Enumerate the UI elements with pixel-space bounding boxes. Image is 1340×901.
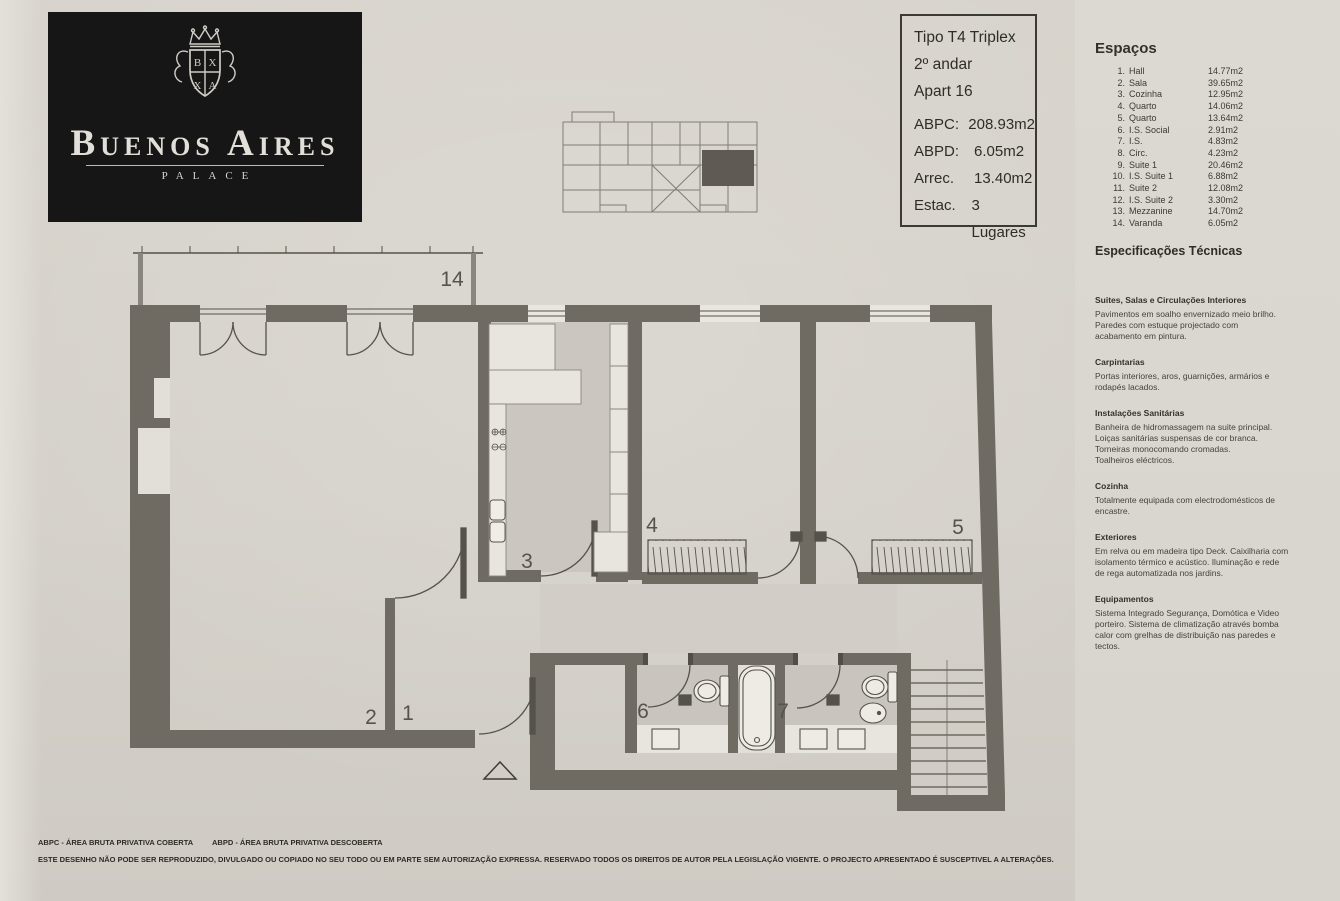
metric-value: 13.40m2 <box>974 165 1032 192</box>
svg-text:X: X <box>194 80 202 92</box>
apartment-number: Apart 16 <box>914 78 1035 105</box>
space-name: I.S. Suite 1 <box>1129 171 1208 183</box>
space-row: 1. Hall 14.77m2 <box>1095 66 1270 78</box>
space-name: Suite 1 <box>1129 160 1208 172</box>
spec-heading: Equipamentos <box>1095 594 1307 604</box>
space-row: 7. I.S. 4.83m2 <box>1095 136 1270 148</box>
metric-value: 6.05m2 <box>974 138 1024 165</box>
metric-label: Estac. <box>914 192 964 246</box>
spec-heading: Exteriores <box>1095 532 1307 542</box>
metric-row: ABPC: 208.93m2 <box>914 111 1035 138</box>
space-number: 4. <box>1095 101 1125 113</box>
space-area: 39.65m2 <box>1208 78 1270 90</box>
space-name: Cozinha <box>1129 89 1208 101</box>
apartment-floor: 2º andar <box>914 51 1035 78</box>
metric-row: Estac. 3 Lugares <box>914 192 1035 246</box>
logo-title: Buenos Aires <box>71 126 340 162</box>
specs-sections: Suites, Salas e Circulações Interiores P… <box>1095 280 1307 652</box>
space-number: 11. <box>1095 183 1125 195</box>
space-name: I.S. Suite 2 <box>1129 195 1208 207</box>
heraldic-crest-icon: BX XA <box>160 22 250 124</box>
space-name: Quarto <box>1129 101 1208 113</box>
space-area: 4.23m2 <box>1208 148 1270 160</box>
space-row: 5. Quarto 13.64m2 <box>1095 113 1270 125</box>
space-name: Quarto <box>1129 113 1208 125</box>
space-number: 14. <box>1095 218 1125 230</box>
spec-heading: Suites, Salas e Circulações Interiores <box>1095 295 1307 305</box>
spec-section: Carpintarias Portas interiores, aros, gu… <box>1095 357 1307 393</box>
bidet-icon <box>860 703 886 723</box>
space-number: 8. <box>1095 148 1125 160</box>
logo-card: BX XA Buenos Aires PALACE <box>48 12 362 222</box>
space-number: 12. <box>1095 195 1125 207</box>
entrance-triangle-icon <box>484 762 516 779</box>
space-number: 3. <box>1095 89 1125 101</box>
space-row: 12. I.S. Suite 2 3.30m2 <box>1095 195 1270 207</box>
metric-value: 3 Lugares <box>972 192 1036 246</box>
metric-row: ABPD: 6.05m2 <box>914 138 1035 165</box>
space-row: 11. Suite 2 12.08m2 <box>1095 183 1270 195</box>
space-row: 14. Varanda 6.05m2 <box>1095 218 1270 230</box>
stairs <box>911 660 987 795</box>
sink-icon <box>800 729 827 749</box>
svg-text:X: X <box>209 57 217 69</box>
space-name: Suite 2 <box>1129 183 1208 195</box>
logo-subtitle: PALACE <box>153 170 258 182</box>
key-plan-unit-highlight <box>702 150 754 186</box>
key-plan-thumbnail <box>555 105 770 230</box>
copyright-disclaimer: ESTE DESENHO NÃO PODE SER REPRODUZIDO, D… <box>38 855 1054 864</box>
room-label-hall: 1 <box>402 702 414 725</box>
sink-icon <box>838 729 865 749</box>
apartment-info-box: Tipo T4 Triplex 2º andar Apart 16 ABPC: … <box>900 14 1037 227</box>
logo-rule <box>86 165 324 166</box>
space-name: I.S. Social <box>1129 125 1208 137</box>
floor-plan-drawing: 14 2 1 3 4 5 6 7 <box>60 240 1015 815</box>
spec-body: Banheira de hidromassagem na suite princ… <box>1095 422 1307 466</box>
spec-section: Instalações Sanitárias Banheira de hidro… <box>1095 408 1307 466</box>
space-area: 14.77m2 <box>1208 66 1270 78</box>
room-label-quarto4: 4 <box>646 514 658 537</box>
space-number: 7. <box>1095 136 1125 148</box>
space-row: 6. I.S. Social 2.91m2 <box>1095 125 1270 137</box>
space-area: 13.64m2 <box>1208 113 1270 125</box>
apartment-metrics: ABPC: 208.93m2 ABPD: 6.05m2 Arrec. 13.40… <box>914 111 1035 246</box>
room-label-cozinha: 3 <box>521 550 533 573</box>
metric-label: Arrec. <box>914 165 966 192</box>
space-row: 3. Cozinha 12.95m2 <box>1095 89 1270 101</box>
spec-section: Suites, Salas e Circulações Interiores P… <box>1095 295 1307 342</box>
space-area: 14.06m2 <box>1208 101 1270 113</box>
spec-body: Portas interiores, aros, guarnições, arm… <box>1095 371 1307 393</box>
spec-heading: Carpintarias <box>1095 357 1307 367</box>
legend-abpd: ABPD - ÁREA BRUTA PRIVATIVA DESCOBERTA <box>212 838 383 847</box>
room-label-quarto5: 5 <box>952 516 964 539</box>
space-name: Circ. <box>1129 148 1208 160</box>
space-number: 9. <box>1095 160 1125 172</box>
spec-body: Em relva ou em madeira tipo Deck. Caixil… <box>1095 546 1307 579</box>
space-number: 1. <box>1095 66 1125 78</box>
spec-heading: Instalações Sanitárias <box>1095 408 1307 418</box>
metric-label: ABPC: <box>914 111 960 138</box>
space-area: 4.83m2 <box>1208 136 1270 148</box>
balcony <box>133 246 483 305</box>
space-name: Varanda <box>1129 218 1208 230</box>
space-row: 13. Mezzanine 14.70m2 <box>1095 206 1270 218</box>
space-number: 2. <box>1095 78 1125 90</box>
space-row: 8. Circ. 4.23m2 <box>1095 148 1270 160</box>
spec-body: Pavimentos em soalho envernizado meio br… <box>1095 309 1307 342</box>
space-number: 6. <box>1095 125 1125 137</box>
metric-label: ABPD: <box>914 138 966 165</box>
space-row: 4. Quarto 14.06m2 <box>1095 101 1270 113</box>
space-name: I.S. <box>1129 136 1208 148</box>
space-area: 12.08m2 <box>1208 183 1270 195</box>
space-number: 5. <box>1095 113 1125 125</box>
space-area: 14.70m2 <box>1208 206 1270 218</box>
space-number: 10. <box>1095 171 1125 183</box>
space-number: 13. <box>1095 206 1125 218</box>
space-area: 6.05m2 <box>1208 218 1270 230</box>
space-area: 3.30m2 <box>1208 195 1270 207</box>
sink-icon <box>652 729 679 749</box>
apartment-type: Tipo T4 Triplex <box>914 24 1035 51</box>
svg-text:A: A <box>209 80 217 92</box>
space-row: 9. Suite 1 20.46m2 <box>1095 160 1270 172</box>
legend-abpc: ABPC - ÁREA BRUTA PRIVATIVA COBERTA <box>38 838 193 847</box>
space-area: 2.91m2 <box>1208 125 1270 137</box>
metric-value: 208.93m2 <box>968 111 1035 138</box>
space-name: Hall <box>1129 66 1208 78</box>
space-area: 6.88m2 <box>1208 171 1270 183</box>
scanned-floorplan-sheet: BX XA Buenos Aires PALACE Tipo T4 Triple… <box>0 0 1340 901</box>
spec-section: Exteriores Em relva ou em madeira tipo D… <box>1095 532 1307 579</box>
spec-heading: Cozinha <box>1095 481 1307 491</box>
room-label-is7: 7 <box>777 700 789 723</box>
space-area: 20.46m2 <box>1208 160 1270 172</box>
specs-title: Especificações Técnicas <box>1095 244 1242 258</box>
spaces-list: 1. Hall 14.77m2 2. Sala 39.65m2 3. Cozin… <box>1095 66 1270 230</box>
spec-body: Sistema Integrado Segurança, Domótica e … <box>1095 608 1307 652</box>
space-row: 2. Sala 39.65m2 <box>1095 78 1270 90</box>
spaces-title: Espaços <box>1095 40 1157 57</box>
space-name: Mezzanine <box>1129 206 1208 218</box>
room-label-is-social: 6 <box>637 700 649 723</box>
space-area: 12.95m2 <box>1208 89 1270 101</box>
specs-panel: Espaços 1. Hall 14.77m2 2. Sala 39.65m2 … <box>1075 0 1340 901</box>
room-label-sala: 2 <box>365 706 377 729</box>
space-row: 10. I.S. Suite 1 6.88m2 <box>1095 171 1270 183</box>
svg-text:B: B <box>194 57 201 69</box>
spec-section: Equipamentos Sistema Integrado Segurança… <box>1095 594 1307 652</box>
space-name: Sala <box>1129 78 1208 90</box>
bathtub-icon <box>739 666 775 750</box>
room-label-varanda: 14 <box>440 268 464 291</box>
spec-section: Cozinha Totalmente equipada com electrod… <box>1095 481 1307 517</box>
spec-body: Totalmente equipada com electrodoméstico… <box>1095 495 1307 517</box>
metric-row: Arrec. 13.40m2 <box>914 165 1035 192</box>
